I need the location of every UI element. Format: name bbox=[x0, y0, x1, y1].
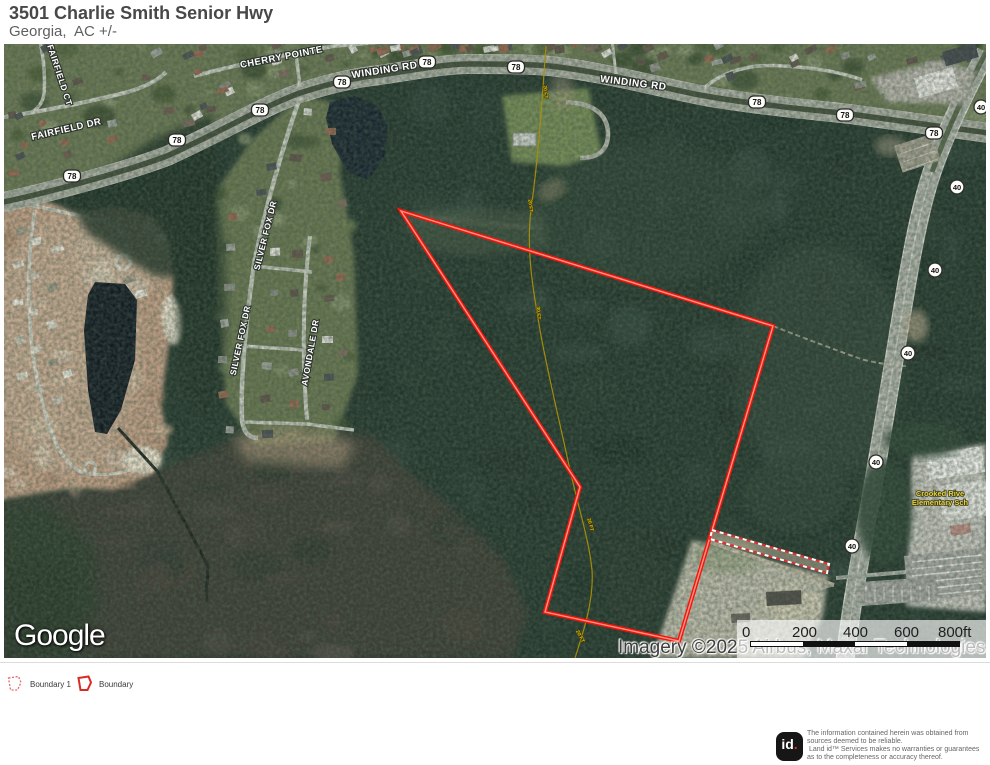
svg-text:30 FT: 30 FT bbox=[535, 306, 542, 319]
svg-text:78: 78 bbox=[841, 111, 850, 120]
svg-text:78: 78 bbox=[173, 136, 182, 145]
svg-text:78: 78 bbox=[68, 172, 77, 181]
svg-text:Crooked Rive: Crooked Rive bbox=[916, 489, 964, 498]
svg-text:40: 40 bbox=[953, 183, 961, 192]
svg-text:40: 40 bbox=[977, 103, 985, 112]
svg-text:Elementary Sch: Elementary Sch bbox=[912, 498, 969, 507]
svg-text:78: 78 bbox=[512, 63, 521, 72]
svg-text:78: 78 bbox=[423, 58, 432, 67]
svg-text:78: 78 bbox=[256, 106, 265, 115]
svg-text:78: 78 bbox=[930, 129, 939, 138]
svg-text:78: 78 bbox=[338, 78, 347, 87]
svg-text:78: 78 bbox=[753, 98, 762, 107]
svg-text:40: 40 bbox=[872, 458, 880, 467]
svg-text:20 FT: 20 FT bbox=[541, 85, 548, 99]
svg-text:40: 40 bbox=[931, 266, 939, 275]
svg-text:40: 40 bbox=[848, 542, 856, 551]
svg-text:40: 40 bbox=[904, 349, 912, 358]
